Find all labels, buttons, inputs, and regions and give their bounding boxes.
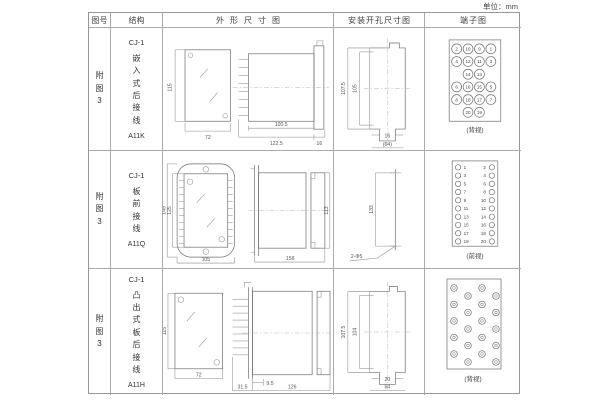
terminal-cell-a11k: 2109141211314136161558181772019 (背视) [425, 28, 521, 151]
terminal-diagram-a11k: 2109141211314136161558181772019 (背视) [425, 28, 521, 150]
view-label: (背视) [464, 374, 481, 383]
svg-text:3: 3 [464, 173, 467, 178]
dim-side-height: 113 [324, 206, 330, 214]
header-outline: 外形尺寸图 [163, 13, 334, 28]
dim-body-length: 100.5 [275, 122, 288, 128]
svg-text:16: 16 [466, 85, 472, 90]
dim-width: 105 [202, 257, 211, 263]
dim-overall-width: 64 [385, 384, 391, 390]
svg-text:7: 7 [464, 190, 467, 195]
svg-text:14: 14 [466, 72, 472, 77]
cutout-view: 107.5 104 20 64 [341, 282, 411, 391]
structure-cell-a11h: CJ-1 凸出式板后接线 A11H [111, 269, 163, 395]
header-figure-no: 图号 [89, 13, 111, 28]
header-structure: 结构 [111, 13, 163, 28]
mounting-cell-a11h: 107.5 104 20 64 [334, 269, 425, 395]
svg-text:2: 2 [455, 47, 458, 52]
figure-no-cell-a11q: 附图3 [89, 151, 111, 269]
svg-text:6: 6 [455, 85, 458, 90]
side-view: 9.5 31.5 126 [233, 282, 332, 390]
svg-text:10: 10 [466, 47, 472, 52]
dim-body-length: 126 [288, 385, 297, 391]
outline-cell-a11k: 115 72 1 [163, 28, 334, 151]
outline-cell-a11q: 149 125 105 [163, 151, 334, 269]
dim-cutout-inner: 104 [353, 328, 359, 337]
svg-text:4: 4 [455, 59, 458, 64]
svg-text:17: 17 [464, 231, 470, 236]
svg-text:9: 9 [478, 47, 481, 52]
svg-text:15: 15 [464, 223, 470, 228]
svg-text:15: 15 [477, 85, 483, 90]
hole-layout: 133 2-Φ5 [350, 169, 401, 261]
cutout-view: 107.5 105 16 (64) [341, 38, 411, 148]
structure-model: CJ-1 [129, 275, 145, 284]
svg-text:2: 2 [483, 165, 486, 170]
svg-text:19: 19 [464, 239, 470, 244]
svg-text:19: 19 [477, 110, 483, 115]
structure-desc: 凸出式板后接线 [133, 290, 141, 377]
spec-table: 图号 结构 外形尺寸图 安装开孔尺寸图 端子图 附图3 CJ-1 嵌入式后接线 … [88, 12, 520, 394]
dim-inner-height: 125 [167, 206, 173, 215]
structure-model: CJ-1 [129, 38, 145, 47]
svg-text:18: 18 [481, 231, 487, 236]
figure-no-label: 附图3 [96, 70, 104, 107]
dim-slot-width: 16 [385, 133, 391, 139]
svg-text:20: 20 [466, 110, 472, 115]
figure-no-cell-a11h: 附图3 [89, 269, 111, 395]
unit-label: 单位：mm [400, 1, 518, 12]
mounting-cell-a11q: 133 2-Φ5 [334, 151, 425, 269]
front-view: 115 72 [168, 50, 231, 141]
dim-offset: 31.5 [238, 385, 248, 391]
svg-text:13: 13 [464, 214, 470, 219]
svg-text:11: 11 [464, 206, 469, 211]
structure-cell-a11q: CJ-1 板前接线 A11Q [111, 151, 163, 269]
dim-width: 72 [196, 373, 202, 379]
outline-cell-a11h: 115 72 [163, 269, 334, 395]
front-view: 115 72 [163, 293, 223, 379]
terminal-grid [451, 285, 500, 366]
side-view: 156 113 [248, 165, 330, 262]
structure-code: A11K [128, 133, 145, 140]
dim-total-length: 122.5 [270, 141, 283, 147]
terminal-grid: 2109141211314136161558181772019 [452, 44, 496, 117]
side-view: 100.5 122.5 16 [233, 41, 329, 147]
dim-cutout-outer: 107.5 [341, 325, 347, 338]
dim-cutout-inner: 105 [353, 84, 359, 93]
outline-drawing-a11h: 115 72 [163, 269, 333, 395]
structure-desc: 嵌入式后接线 [133, 53, 141, 127]
mounting-drawing-a11q: 133 2-Φ5 [334, 151, 424, 268]
svg-text:16: 16 [481, 223, 487, 228]
svg-text:11: 11 [477, 59, 482, 64]
dim-slot-width: 20 [385, 377, 391, 383]
dim-overall-width: (64) [383, 142, 392, 148]
hole-callout: 2-Φ5 [351, 254, 363, 260]
svg-text:12: 12 [481, 206, 487, 211]
outline-drawing-a11k: 115 72 1 [163, 28, 333, 150]
manual-page: 单位：mm 图号 结构 外形尺寸图 安装开孔尺寸图 端子图 附图3 CJ-1 嵌… [0, 0, 600, 400]
terminal-grid: 1234567891011121314151617181920 [455, 165, 494, 244]
svg-text:18: 18 [466, 97, 472, 102]
mounting-drawing-a11h: 107.5 104 20 64 [334, 269, 424, 395]
view-label: (前视) [466, 251, 483, 260]
dim-stud: 9.5 [266, 381, 273, 387]
figure-no-label: 附图3 [96, 313, 104, 350]
terminal-diagram-a11h: (背视) [425, 269, 521, 395]
svg-text:13: 13 [477, 72, 483, 77]
svg-text:14: 14 [481, 214, 487, 219]
dim-width: 72 [205, 135, 211, 141]
svg-text:6: 6 [483, 181, 486, 186]
structure-code: A11Q [128, 241, 145, 248]
svg-text:5: 5 [490, 85, 493, 90]
svg-text:8: 8 [455, 97, 458, 102]
svg-text:9: 9 [464, 198, 467, 203]
header-terminal: 端子图 [425, 13, 521, 28]
svg-text:20: 20 [481, 239, 487, 244]
structure-model: CJ-1 [129, 171, 145, 180]
figure-no-cell-a11k: 附图3 [89, 28, 111, 151]
dim-height: 115 [163, 327, 168, 335]
figure-no-label: 附图3 [96, 191, 104, 228]
structure-code: A11H [128, 382, 145, 389]
svg-text:1: 1 [490, 47, 493, 52]
dim-flange: 16 [317, 141, 323, 147]
header-mounting: 安装开孔尺寸图 [334, 13, 425, 28]
mounting-drawing-a11k: 107.5 105 16 (64) [334, 28, 424, 150]
mounting-cell-a11k: 107.5 105 16 (64) [334, 28, 425, 151]
structure-desc: 板前接线 [133, 186, 141, 236]
dim-cutout-outer: 107.5 [341, 82, 347, 95]
structure-cell-a11k: CJ-1 嵌入式后接线 A11K [111, 28, 163, 151]
outline-drawing-a11q: 149 125 105 [163, 151, 333, 268]
dim-hole-spacing: 133 [369, 205, 375, 214]
svg-text:17: 17 [477, 97, 483, 102]
svg-text:8: 8 [483, 190, 486, 195]
svg-text:4: 4 [483, 173, 486, 178]
view-label: (背视) [466, 125, 483, 134]
svg-text:3: 3 [490, 59, 493, 64]
svg-text:10: 10 [481, 198, 487, 203]
terminal-diagram-a11q: 1234567891011121314151617181920 (前视) [425, 151, 521, 268]
svg-text:7: 7 [490, 97, 493, 102]
front-view: 149 125 105 [163, 164, 235, 263]
svg-text:5: 5 [464, 181, 467, 186]
terminal-cell-a11q: 1234567891011121314151617181920 (前视) [425, 151, 521, 269]
dim-side-length: 156 [286, 256, 295, 262]
svg-text:1: 1 [464, 165, 467, 170]
dim-height: 115 [168, 83, 174, 91]
svg-text:12: 12 [466, 59, 472, 64]
terminal-cell-a11h: (背视) [425, 269, 521, 395]
